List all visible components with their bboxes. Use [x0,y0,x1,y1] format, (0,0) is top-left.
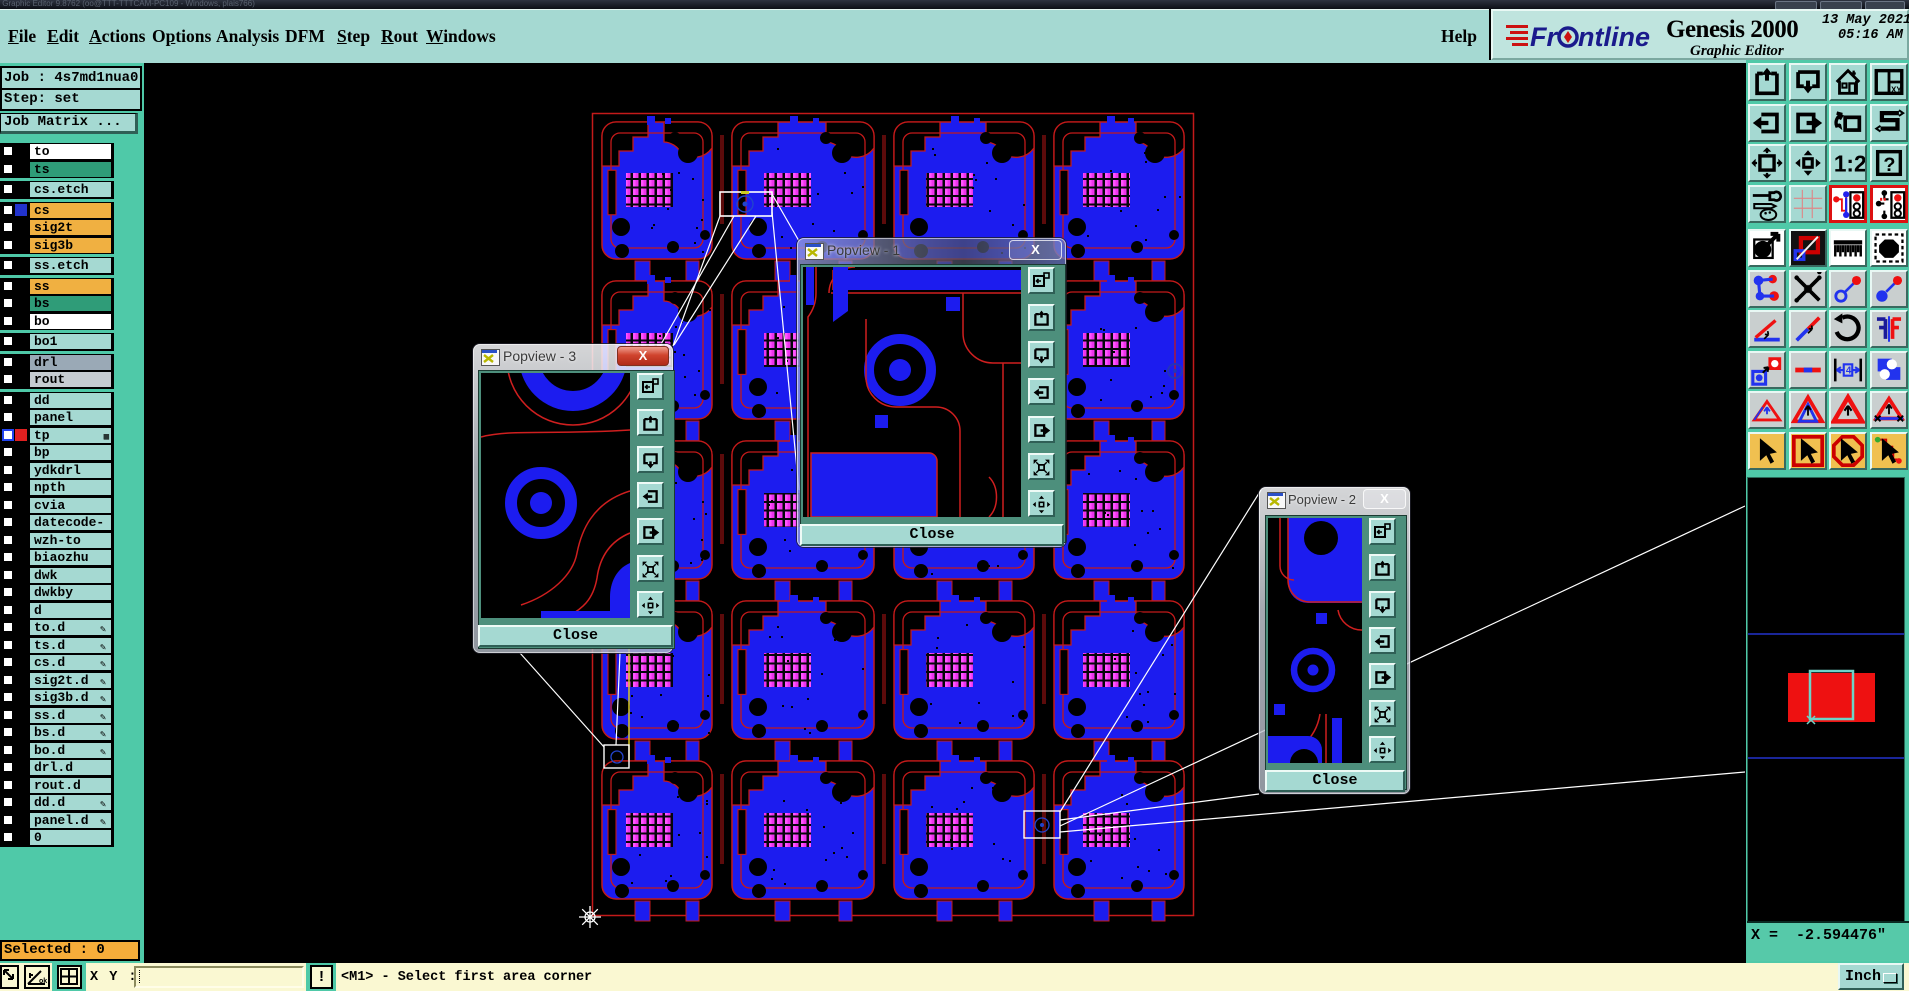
svg-text:1:2: 1:2 [1834,151,1865,177]
svg-text:Fr: Fr [1530,22,1558,52]
svg-text:XY: XY [1891,86,1902,95]
svg-text:ok: ok [39,978,47,985]
svg-text:ntline: ntline [1578,22,1650,52]
svg-text:?: ? [1883,154,1895,176]
svg-text:4: 4 [1846,365,1852,376]
